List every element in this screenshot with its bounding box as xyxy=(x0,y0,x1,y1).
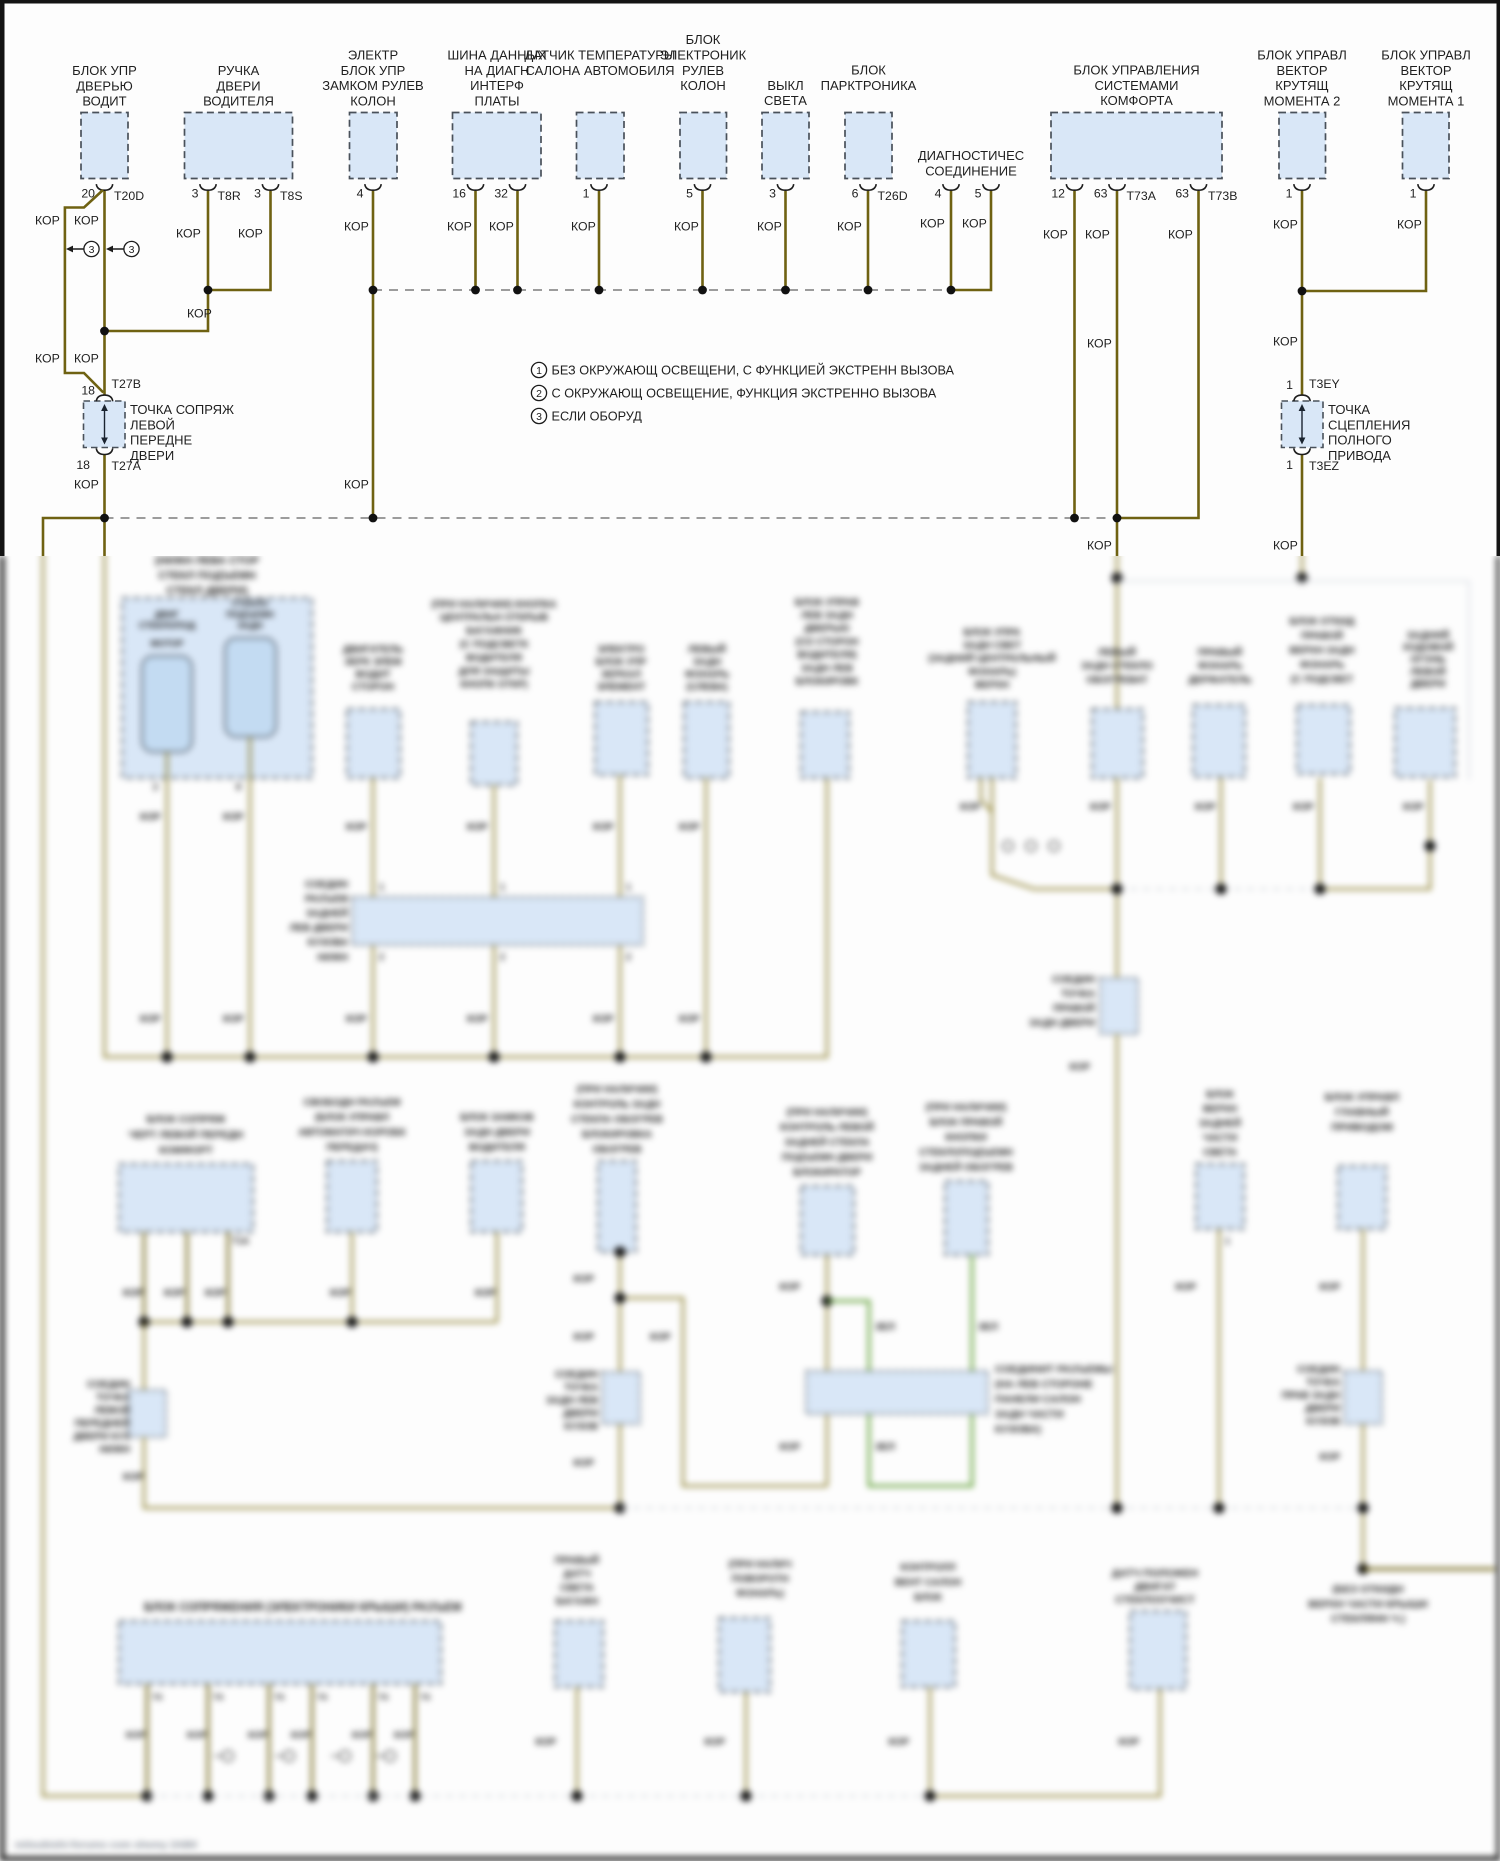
svg-text:ЛЕВЫЙ: ЛЕВЫЙ xyxy=(688,642,726,655)
svg-text:КОР: КОР xyxy=(140,812,161,823)
svg-text:ПРИВОДОМ: ПРИВОДОМ xyxy=(1331,1122,1393,1134)
svg-text:СОЕДИН: СОЕДИН xyxy=(305,879,348,890)
svg-text:ДВЕРИ: ДВЕРИ xyxy=(130,448,174,463)
svg-text:16: 16 xyxy=(452,187,466,201)
svg-text:(ПРИ НАЛИЧИИ): (ПРИ НАЛИЧИИ) xyxy=(787,1107,868,1118)
svg-text:КОР: КОР xyxy=(962,217,987,231)
svg-text:ДВЕРЬЮ: ДВЕРЬЮ xyxy=(76,78,132,93)
svg-text:ЗЕРК ЭЛЕМ: ЗЕРК ЭЛЕМ xyxy=(344,657,401,668)
svg-text:ИНТЕРФ: ИНТЕРФ xyxy=(470,78,524,93)
svg-text:ЗАДНЕЙ: ЗАДНЕЙ xyxy=(1199,1117,1241,1130)
svg-text:КОР: КОР xyxy=(960,802,981,813)
svg-text:ЛЕВОЙ: ЛЕВОЙ xyxy=(1410,665,1446,678)
svg-text:КОР: КОР xyxy=(346,822,367,833)
svg-text:КОР: КОР xyxy=(187,1730,207,1741)
svg-text:ВОДИТ: ВОДИТ xyxy=(355,670,390,681)
svg-text:ЭЛЕКТРОНИК: ЭЛЕКТРОНИК xyxy=(660,47,747,62)
svg-text:КУЗОВ: КУЗОВ xyxy=(564,1421,598,1432)
svg-text:БЛОК УПР: БЛОК УПР xyxy=(596,657,647,668)
svg-text:БЛОК: БЛОК xyxy=(686,32,721,47)
svg-text:ДВЕРИ: ДВЕРИ xyxy=(563,1408,598,1419)
svg-text:1: 1 xyxy=(536,365,542,377)
svg-text:ДЕРЖАТЕЛЬ: ДЕРЖАТЕЛЬ xyxy=(1188,675,1251,686)
svg-text:5: 5 xyxy=(686,187,693,201)
svg-text:БЛОКИРАТОР: БЛОКИРАТОР xyxy=(793,1167,861,1178)
svg-text:КОР: КОР xyxy=(346,1014,367,1025)
svg-text:СВЕТА: СВЕТА xyxy=(764,93,807,108)
svg-text:1: 1 xyxy=(583,187,590,201)
svg-text:КОР: КОР xyxy=(837,220,862,234)
svg-text:СТЕКЛОПОДЪЕМН: СТЕКЛОПОДЪЕМН xyxy=(919,1147,1013,1158)
svg-text:32: 32 xyxy=(494,187,508,201)
svg-text:КОР: КОР xyxy=(571,220,596,234)
svg-text:КОР: КОР xyxy=(1403,802,1424,813)
svg-text:БЛОК ПРАВОЙ: БЛОК ПРАВОЙ xyxy=(930,1115,1003,1128)
svg-text:ПОДЪЕМН: ПОДЪЕМН xyxy=(226,610,274,620)
svg-text:КОР: КОР xyxy=(291,1730,311,1741)
svg-text:КНОПК ОТКР): КНОПК ОТКР) xyxy=(460,680,527,691)
svg-text:КОР: КОР xyxy=(920,217,945,231)
svg-text:КОР: КОР xyxy=(394,1730,414,1741)
svg-text:(ПРИ НАЛИЧ: (ПРИ НАЛИЧ xyxy=(729,1559,792,1570)
svg-text:ФОНАРЬ: ФОНАРЬ xyxy=(1198,661,1243,672)
svg-text:3: 3 xyxy=(536,411,542,423)
svg-text:РАЗЪЕМ: РАЗЪЕМ xyxy=(305,894,348,905)
svg-text:ДВИГАТ: ДВИГАТ xyxy=(1134,1581,1176,1593)
svg-text:ДВИГАТЕЛЬ: ДВИГАТЕЛЬ xyxy=(343,644,403,655)
svg-text:ФОНАРЬ: ФОНАРЬ xyxy=(1300,660,1345,671)
svg-text:ЗАДНЕЙ: ЗАДНЕЙ xyxy=(306,907,348,920)
svg-text:ТОЧКА: ТОЧКА xyxy=(1061,989,1095,1000)
svg-text:КОР: КОР xyxy=(1087,337,1112,351)
svg-text:БЛОКИРОВКА: БЛОКИРОВКА xyxy=(582,1129,652,1140)
svg-text:1: 1 xyxy=(500,882,505,892)
svg-text:1: 1 xyxy=(1286,187,1293,201)
svg-text:КОР: КОР xyxy=(1043,228,1068,242)
svg-text:КОР: КОР xyxy=(489,220,514,234)
svg-text:3: 3 xyxy=(769,187,776,201)
svg-text:ДВЕРИ: ДВЕРИ xyxy=(1411,679,1446,690)
svg-text:ЭЛЕКТР: ЭЛЕКТР xyxy=(348,47,398,62)
svg-text:СТОРОН: СТОРОН xyxy=(352,682,394,693)
svg-text:(С ПОДСВЕТ: (С ПОДСВЕТ xyxy=(1291,675,1354,686)
svg-text:КОЛОН: КОЛОН xyxy=(350,93,395,108)
svg-text:НА ДИАГН: НА ДИАГН xyxy=(465,63,530,78)
svg-text:ВЕРХН: ВЕРХН xyxy=(975,680,1009,691)
svg-text:ЗАДНЕЙ ОБОГРЕВ: ЗАДНЕЙ ОБОГРЕВ xyxy=(919,1160,1013,1173)
svg-text:ПРАВЫЙ: ПРАВЫЙ xyxy=(1198,645,1242,658)
svg-text:СОЕДИН: СОЕДИН xyxy=(555,1369,598,1380)
svg-text:КУЗОВА: КУЗОВА xyxy=(308,938,348,949)
svg-text:T73B: T73B xyxy=(1208,189,1237,203)
svg-text:3: 3 xyxy=(254,187,261,201)
svg-text:ЭЛЕМЕНТ: ЭЛЕМЕНТ xyxy=(597,682,646,693)
svg-text:АВТОМАТИЧ КОРОБК: АВТОМАТИЧ КОРОБК xyxy=(298,1127,406,1138)
svg-text:3: 3 xyxy=(192,187,199,201)
svg-text:ЛЕВ ЗАДН: ЛЕВ ЗАДН xyxy=(801,611,853,622)
svg-text:КОР: КОР xyxy=(1175,1282,1196,1293)
svg-text:ТОЧКА: ТОЧКА xyxy=(1306,1377,1340,1388)
svg-text:8: 8 xyxy=(236,782,241,792)
svg-text:(ПРИ НАЛИЧИИ): (ПРИ НАЛИЧИИ) xyxy=(577,1084,658,1095)
svg-text:3: 3 xyxy=(129,244,135,256)
svg-text:ВЕРХН ЧАСТИ КРЫШИ: ВЕРХН ЧАСТИ КРЫШИ xyxy=(1308,1598,1427,1610)
svg-text:КОР: КОР xyxy=(1273,218,1298,232)
svg-text:БЛОК УПР: БЛОК УПР xyxy=(72,63,137,78)
svg-text:РУЧКА: РУЧКА xyxy=(218,63,260,78)
svg-text:МОМЕНТА 2: МОМЕНТА 2 xyxy=(1264,93,1341,108)
svg-text:САЛОНА АВТОМОБИЛЯ: САЛОНА АВТОМОБИЛЯ xyxy=(525,63,674,78)
svg-text:T4: T4 xyxy=(317,1692,327,1702)
svg-text:ВЕРХН: ВЕРХН xyxy=(1203,1104,1237,1115)
svg-text:ЗАДН: ЗАДН xyxy=(237,621,262,631)
svg-text:СТЕКЛА ОБОГРЕВ: СТЕКЛА ОБОГРЕВ xyxy=(571,1114,663,1125)
svg-text:ТОЧКА: ТОЧКА xyxy=(1328,402,1370,417)
svg-text:БЛОК: БЛОК xyxy=(1206,1089,1235,1100)
svg-text:ЕСЛИ ОБОРУД: ЕСЛИ ОБОРУД xyxy=(552,410,643,424)
svg-text:КОЛОН: КОЛОН xyxy=(680,78,725,93)
svg-text:РУЛЕВ: РУЛЕВ xyxy=(682,63,724,78)
svg-text:T20D: T20D xyxy=(114,189,144,203)
svg-text:1: 1 xyxy=(1286,378,1293,392)
svg-text:КОР: КОР xyxy=(1085,228,1110,242)
svg-text:T26D: T26D xyxy=(878,189,908,203)
svg-text:КОР: КОР xyxy=(164,1288,185,1299)
svg-text:ХОДОВОЙ: ХОДОВОЙ xyxy=(1403,641,1454,654)
svg-text:12: 12 xyxy=(1051,187,1065,201)
svg-text:БЛОК ЗАМКОВ: БЛОК ЗАМКОВ xyxy=(460,1112,534,1123)
svg-text:СТЕКЛЯНН Ч.): СТЕКЛЯНН Ч.) xyxy=(1331,1613,1405,1625)
svg-text:ВОДИТЕЛЯ: ВОДИТЕЛЯ xyxy=(466,653,522,664)
svg-text:КОР: КОР xyxy=(330,1288,351,1299)
svg-text:ПРАВЫЙ: ПРАВЫЙ xyxy=(555,1553,599,1566)
svg-text:1: 1 xyxy=(379,882,384,892)
svg-text:T8R: T8R xyxy=(218,189,241,203)
svg-text:4: 4 xyxy=(935,187,942,201)
svg-text:ЦЕНТРАЛЬН ОТКРЫВ: ЦЕНТРАЛЬН ОТКРЫВ xyxy=(440,613,548,624)
svg-text:КОР: КОР xyxy=(679,822,700,833)
svg-text:2: 2 xyxy=(500,952,505,962)
svg-text:КОНТРОЛЛ: КОНТРОЛЛ xyxy=(900,1562,955,1573)
svg-text:БЛОК УПРАВЛ: БЛОК УПРАВЛ xyxy=(1257,47,1347,62)
svg-text:СВОБОДН РАЗЪЕМ: СВОБОДН РАЗЪЕМ xyxy=(304,1097,401,1108)
svg-text:ПОЛНОГО: ПОЛНОГО xyxy=(1328,433,1392,448)
svg-text:ФОНАРЬ: ФОНАРЬ xyxy=(685,670,730,681)
svg-text:ЧАСТИ: ЧАСТИ xyxy=(1203,1133,1237,1144)
svg-text:КОР: КОР xyxy=(123,1288,144,1299)
svg-text:T27B: T27B xyxy=(112,377,141,391)
svg-text:БЕЗ ОКРУЖАЮЩ ОСВЕЩЕНИ, С ФУНКЦ: БЕЗ ОКРУЖАЮЩ ОСВЕЩЕНИ, С ФУНКЦИЕЙ ЭКСТРЕ… xyxy=(552,363,955,378)
svg-text:КОР: КОР xyxy=(593,1014,614,1025)
svg-text:(С ПОДСВЕТК: (С ПОДСВЕТК xyxy=(460,640,530,651)
svg-text:КОР: КОР xyxy=(140,1014,161,1025)
svg-text:1: 1 xyxy=(1225,1236,1230,1246)
svg-text:СТЕКЛ ПОДЪЕМН: СТЕКЛ ПОДЪЕМН xyxy=(158,570,255,582)
svg-text:ПЕРЕДНЕ: ПЕРЕДНЕ xyxy=(130,433,193,448)
svg-text:КОР: КОР xyxy=(1319,1452,1340,1463)
svg-text:ДВЕРИ КУЗ: ДВЕРИ КУЗ xyxy=(74,1431,131,1442)
svg-text:ПЕРЕДАЧ): ПЕРЕДАЧ) xyxy=(326,1142,377,1153)
svg-text:ЗАДНЕЙ СТЕКЛА: ЗАДНЕЙ СТЕКЛА xyxy=(785,1135,870,1148)
svg-text:T4: T4 xyxy=(152,1692,162,1702)
svg-text:2: 2 xyxy=(626,952,631,962)
svg-text:(СЛЕВА): (СЛЕВА) xyxy=(686,682,727,693)
svg-text:КОР: КОР xyxy=(35,214,60,228)
svg-text:КОР: КОР xyxy=(679,1014,700,1025)
svg-text:СЦЕПЛЕНИЯ: СЦЕПЛЕНИЯ xyxy=(1328,417,1410,432)
svg-text:ЗАДН ЛЕВ: ЗАДН ЛЕВ xyxy=(801,663,853,674)
svg-text:КОР: КОР xyxy=(1293,802,1314,813)
svg-text:БЛОК: БЛОК xyxy=(914,1592,943,1603)
svg-text:ЛЕВ ДВЕРИ: ЛЕВ ДВЕРИ xyxy=(289,923,348,934)
svg-text:mitsubishi-forums com shemy 2A: mitsubishi-forums com shemy 2AB0 xyxy=(15,1839,197,1851)
svg-text:СТЕКЛОПОД: СТЕКЛОПОД xyxy=(139,621,196,631)
svg-text:ДВЕРЬЮ: ДВЕРЬЮ xyxy=(804,624,849,635)
svg-text:5: 5 xyxy=(975,187,982,201)
svg-text:ЗЕЛ: ЗЕЛ xyxy=(978,1322,998,1333)
svg-text:(СО СТОРОН: (СО СТОРОН xyxy=(795,637,858,648)
svg-text:ДАТЧ: ДАТЧ xyxy=(564,1569,591,1580)
svg-text:КОР: КОР xyxy=(650,1332,671,1343)
svg-text:ЭЛЕКТРО: ЭЛЕКТРО xyxy=(597,644,644,655)
svg-text:СИСТЕМАМИ: СИСТЕМАМИ xyxy=(1095,78,1179,93)
svg-text:(ПРИ НАЛИЧИИ): (ПРИ НАЛИЧИИ) xyxy=(926,1102,1007,1113)
svg-text:ВЕРХН ЗАДН: ВЕРХН ЗАДН xyxy=(1289,646,1354,657)
svg-text:КУЗОВА): КУЗОВА) xyxy=(995,1424,1041,1436)
svg-text:ПАРКТРОНИКА: ПАРКТРОНИКА xyxy=(821,78,917,93)
svg-text:КОНТРОЛЬ ЛЕВОЙ: КОНТРОЛЬ ЛЕВОЙ xyxy=(780,1120,874,1133)
svg-text:СТЕКЛО: СТЕКЛО xyxy=(232,599,269,609)
svg-text:ЛЕВОЙ: ЛЕВОЙ xyxy=(130,417,175,432)
svg-text:(БЛОК УПРАВЛ: (БЛОК УПРАВЛ xyxy=(315,1112,389,1123)
svg-text:КОР: КОР xyxy=(1087,539,1112,553)
svg-text:БЛОК УПР: БЛОК УПР xyxy=(341,63,406,78)
svg-text:КНОПКИ: КНОПКИ xyxy=(945,1132,987,1143)
svg-text:КОР: КОР xyxy=(248,1730,268,1741)
svg-text:БЛОК СОПРЯЖ: БЛОК СОПРЯЖ xyxy=(147,1114,226,1126)
svg-text:КОР: КОР xyxy=(126,1730,146,1741)
svg-text:4: 4 xyxy=(357,187,364,201)
svg-text:ДВЕРИ: ДВЕРИ xyxy=(1305,1403,1340,1414)
svg-text:ДВЕРИ: ДВЕРИ xyxy=(216,78,260,93)
svg-text:T4: T4 xyxy=(213,1692,223,1702)
svg-text:63: 63 xyxy=(1175,187,1189,201)
svg-text:СТЕКЛООЧИСТ: СТЕКЛООЧИСТ xyxy=(1115,1594,1195,1606)
svg-text:КОР: КОР xyxy=(344,478,369,492)
svg-text:КОР: КОР xyxy=(467,1014,488,1025)
svg-text:63: 63 xyxy=(1094,187,1108,201)
svg-text:(НА ЛЕВ СТОРОНЕ: (НА ЛЕВ СТОРОНЕ xyxy=(995,1379,1093,1391)
svg-text:КОР: КОР xyxy=(573,1274,594,1285)
svg-text:(ПРИ НАЛИЧИИ) КНОПКА: (ПРИ НАЛИЧИИ) КНОПКА xyxy=(431,599,556,610)
svg-text:ФОНАРЬ): ФОНАРЬ) xyxy=(968,667,1016,678)
svg-text:ПОДЪЕМН ДВЕРИ: ПОДЪЕМН ДВЕРИ xyxy=(782,1152,873,1163)
svg-text:ПЛАТЫ: ПЛАТЫ xyxy=(475,93,520,108)
svg-text:ОГОНЬ: ОГОНЬ xyxy=(1410,655,1446,666)
svg-text:БАГАЖНИК: БАГАЖНИК xyxy=(466,626,523,637)
svg-text:T3EY: T3EY xyxy=(1309,377,1340,391)
svg-text:T1A: T1A xyxy=(232,1236,250,1246)
svg-text:ВОДИТЕЛЯ: ВОДИТЕЛЯ xyxy=(203,94,274,109)
svg-text:ТОЧКА: ТОЧКА xyxy=(564,1382,598,1393)
svg-text:ПЕРЕДНЕЙ: ПЕРЕДНЕЙ xyxy=(75,1416,130,1429)
svg-text:КОР: КОР xyxy=(475,1288,496,1299)
svg-text:КОР: КОР xyxy=(123,1472,144,1483)
svg-text:ПРАВОЙ: ПРАВОЙ xyxy=(1301,629,1343,642)
svg-text:ЗАДН: ЗАДН xyxy=(693,657,721,668)
svg-text:КОР: КОР xyxy=(74,352,99,366)
svg-text:БЛОК УПРАВЛ: БЛОК УПРАВЛ xyxy=(1325,1092,1400,1104)
svg-text:ОБОГРЕВ: ОБОГРЕВ xyxy=(593,1144,642,1155)
svg-text:ПАНЕЛИ САЛОН: ПАНЕЛИ САЛОН xyxy=(995,1394,1081,1406)
svg-text:КОР: КОР xyxy=(1397,218,1422,232)
svg-text:СВЕТА: СВЕТА xyxy=(1203,1148,1237,1159)
svg-text:(БЕЗ ОТКИДН: (БЕЗ ОТКИДН xyxy=(1332,1584,1403,1596)
svg-text:БЛОК ОТКИД: БЛОК ОТКИД xyxy=(1290,616,1355,627)
svg-text:ЗАДН ЧАСТИ: ЗАДН ЧАСТИ xyxy=(995,1409,1064,1421)
svg-text:ДВИГ: ДВИГ xyxy=(155,610,179,620)
svg-text:ПРАВ ЗАДН: ПРАВ ЗАДН xyxy=(1282,1390,1340,1401)
svg-text:ЗАМКОМ РУЛЕВ: ЗАМКОМ РУЛЕВ xyxy=(322,78,423,93)
svg-text:ВОДИТЕЛЯ: ВОДИТЕЛЯ xyxy=(469,1142,525,1153)
svg-text:КОР: КОР xyxy=(573,1332,594,1343)
svg-text:ЗАДН СВЕТ: ЗАДН СВЕТ xyxy=(963,641,1021,652)
svg-text:НИЖН: НИЖН xyxy=(99,1444,130,1455)
svg-text:КОР: КОР xyxy=(352,1730,372,1741)
svg-text:ЗАДН ЛЕВ: ЗАДН ЛЕВ xyxy=(546,1395,598,1406)
svg-text:КОР: КОР xyxy=(205,1288,226,1299)
svg-text:СВЕТА: СВЕТА xyxy=(560,1583,594,1594)
svg-text:18: 18 xyxy=(81,384,95,398)
svg-text:ДАТЧ ПОЛОЖЕН: ДАТЧ ПОЛОЖЕН xyxy=(1112,1568,1198,1580)
svg-text:КОМФОРТА: КОМФОРТА xyxy=(1100,93,1173,108)
svg-text:КОР: КОР xyxy=(779,1442,800,1453)
svg-text:ЛЕВЫЙ: ЛЕВЫЙ xyxy=(1098,645,1136,658)
svg-text:ЗЕЛ: ЗЕЛ xyxy=(875,1442,895,1453)
svg-text:КОР: КОР xyxy=(593,822,614,833)
svg-text:ПОВОРОТН: ПОВОРОТН xyxy=(731,1574,788,1585)
svg-text:ЗЕЛ: ЗЕЛ xyxy=(875,1322,895,1333)
svg-text:КОР: КОР xyxy=(223,1014,244,1025)
svg-text:КОР: КОР xyxy=(779,1282,800,1293)
svg-text:ЗАДН ДВЕРИ: ЗАДН ДВЕРИ xyxy=(1029,1018,1095,1029)
svg-text:С ОКРУЖАЮЩ ОСВЕЩЕНИЕ, ФУНКЦИЯ: С ОКРУЖАЮЩ ОСВЕЩЕНИЕ, ФУНКЦИЯ ЭКСТРЕННО … xyxy=(552,387,937,401)
svg-text:КОР: КОР xyxy=(467,822,488,833)
svg-text:ЗЕРКАЛ: ЗЕРКАЛ xyxy=(601,670,641,681)
svg-text:ПРИВОДА: ПРИВОДА xyxy=(1328,448,1391,463)
svg-text:КОР: КОР xyxy=(757,220,782,234)
svg-text:ДАТЧИК ТЕМПЕРАТУРЫ: ДАТЧИК ТЕМПЕРАТУРЫ xyxy=(525,47,676,62)
svg-text:КОР: КОР xyxy=(74,214,99,228)
svg-text:КОР: КОР xyxy=(1319,1282,1340,1293)
svg-text:БАГАЖН: БАГАЖН xyxy=(556,1597,599,1608)
svg-text:БЛОК: БЛОК xyxy=(851,62,886,77)
svg-text:КОР: КОР xyxy=(573,1458,594,1469)
svg-text:ПРАВОЙ: ПРАВОЙ xyxy=(1053,1002,1095,1015)
svg-text:ТОЧКА: ТОЧКА xyxy=(96,1392,130,1403)
svg-text:T73A: T73A xyxy=(1127,189,1157,203)
svg-text:(НИЖН ЛЕВА СТОР: (НИЖН ЛЕВА СТОР xyxy=(155,556,259,567)
svg-text:КРУТЯЩ: КРУТЯЩ xyxy=(1399,78,1452,93)
svg-text:6: 6 xyxy=(852,187,859,201)
svg-text:БЛОКИРОВК: БЛОКИРОВК xyxy=(796,677,860,688)
svg-text:КОР: КОР xyxy=(1090,802,1111,813)
svg-text:КОР: КОР xyxy=(1069,1062,1090,1073)
svg-text:ЗАДН ДВЕРИ: ЗАДН ДВЕРИ xyxy=(464,1127,530,1138)
svg-text:СОЕДИН: СОЕДИН xyxy=(1052,974,1095,985)
svg-text:КОР: КОР xyxy=(888,1737,909,1748)
svg-text:КОР: КОР xyxy=(1273,335,1298,349)
svg-text:ВЕНТ САЛОН: ВЕНТ САЛОН xyxy=(895,1577,961,1588)
svg-text:КОР: КОР xyxy=(74,478,99,492)
svg-text:1: 1 xyxy=(1410,187,1417,201)
svg-text:ЧЕРТ ЛЕВОЙ ПЕРЕДН: ЧЕРТ ЛЕВОЙ ПЕРЕДН xyxy=(129,1128,244,1141)
svg-text:СОЕДИНИТ РАЗЪЕМЫ: СОЕДИНИТ РАЗЪЕМЫ xyxy=(995,1364,1112,1376)
svg-text:ВЫКЛ: ВЫКЛ xyxy=(767,78,803,93)
svg-text:БЛОК УПРАВЛ: БЛОК УПРАВЛ xyxy=(1381,47,1471,62)
svg-text:ТОЧКА СОПРЯЖ: ТОЧКА СОПРЯЖ xyxy=(130,402,234,417)
svg-text:18: 18 xyxy=(76,458,90,472)
svg-text:ДЛЯ ЗАЩИТЫ: ДЛЯ ЗАЩИТЫ xyxy=(459,666,530,677)
svg-text:ДИАГНОСТИЧЕС: ДИАГНОСТИЧЕС xyxy=(918,148,1024,163)
svg-text:КОР: КОР xyxy=(1118,1737,1139,1748)
svg-text:КОР: КОР xyxy=(1168,228,1193,242)
svg-text:2: 2 xyxy=(536,388,542,400)
svg-text:ЗАДНИЙ: ЗАДНИЙ xyxy=(1407,628,1450,641)
svg-text:КОМФОРТ: КОМФОРТ xyxy=(159,1145,213,1157)
svg-text:КОР: КОР xyxy=(704,1737,725,1748)
svg-text:БЛОК УПРАВЛЕНИЯ: БЛОК УПРАВЛЕНИЯ xyxy=(1073,62,1199,77)
svg-text:КУЗОВ: КУЗОВ xyxy=(1306,1416,1340,1427)
svg-text:КОР: КОР xyxy=(35,352,60,366)
svg-text:(ЗАДНИЙ ЦЕНТРАЛЬНЫЙ: (ЗАДНИЙ ЦЕНТРАЛЬНЫЙ xyxy=(928,652,1056,665)
svg-text:СТЕКЛ ДВЕРИ): СТЕКЛ ДВЕРИ) xyxy=(166,585,248,597)
svg-text:МОМЕНТА 1: МОМЕНТА 1 xyxy=(1388,93,1465,108)
svg-text:КОР: КОР xyxy=(447,220,472,234)
svg-text:КОР: КОР xyxy=(1195,802,1216,813)
svg-text:СОЕДИНЕНИЕ: СОЕДИНЕНИЕ xyxy=(925,163,1017,178)
svg-text:ЛЕВОЙ: ЛЕВОЙ xyxy=(94,1403,130,1416)
svg-text:КРУТЯЩ: КРУТЯЩ xyxy=(1275,78,1328,93)
svg-text:ЗАДН СТЕКЛО: ЗАДН СТЕКЛО xyxy=(1081,661,1153,672)
svg-text:КОР: КОР xyxy=(238,227,263,241)
svg-text:КОР: КОР xyxy=(176,227,201,241)
svg-text:ОБОГРЕВАТ: ОБОГРЕВАТ xyxy=(1086,675,1147,686)
svg-text:1: 1 xyxy=(626,882,631,892)
svg-text:КОР: КОР xyxy=(535,1737,556,1748)
svg-text:T8S: T8S xyxy=(280,189,303,203)
svg-text:КОР: КОР xyxy=(223,812,244,823)
svg-text:ГЛАВНЫЙ: ГЛАВНЫЙ xyxy=(1335,1106,1389,1119)
svg-text:2: 2 xyxy=(379,952,384,962)
svg-text:T4: T4 xyxy=(420,1692,430,1702)
svg-text:ВОДИТЕЛЯ): ВОДИТЕЛЯ) xyxy=(797,650,856,661)
svg-text:БЛОК УПРАВ: БЛОК УПРАВ xyxy=(795,597,859,608)
svg-text:ФОНАРЬ): ФОНАРЬ) xyxy=(736,1589,784,1600)
svg-text:НИЖН: НИЖН xyxy=(317,952,348,963)
svg-text:ВЕКТОР: ВЕКТОР xyxy=(1400,63,1451,78)
svg-text:1: 1 xyxy=(1286,458,1293,472)
svg-text:КОНТРОЛЬ ЗАДН: КОНТРОЛЬ ЗАДН xyxy=(574,1099,660,1110)
svg-text:МОТОР: МОТОР xyxy=(151,639,184,649)
svg-text:ВЕКТОР: ВЕКТОР xyxy=(1276,63,1327,78)
svg-text:КОР: КОР xyxy=(187,307,212,321)
svg-text:КОР: КОР xyxy=(344,220,369,234)
svg-text:T4: T4 xyxy=(378,1692,388,1702)
svg-text:СОЕДИН: СОЕДИН xyxy=(87,1379,130,1390)
svg-text:2: 2 xyxy=(153,782,158,792)
svg-text:ВОДИТ: ВОДИТ xyxy=(82,94,126,109)
